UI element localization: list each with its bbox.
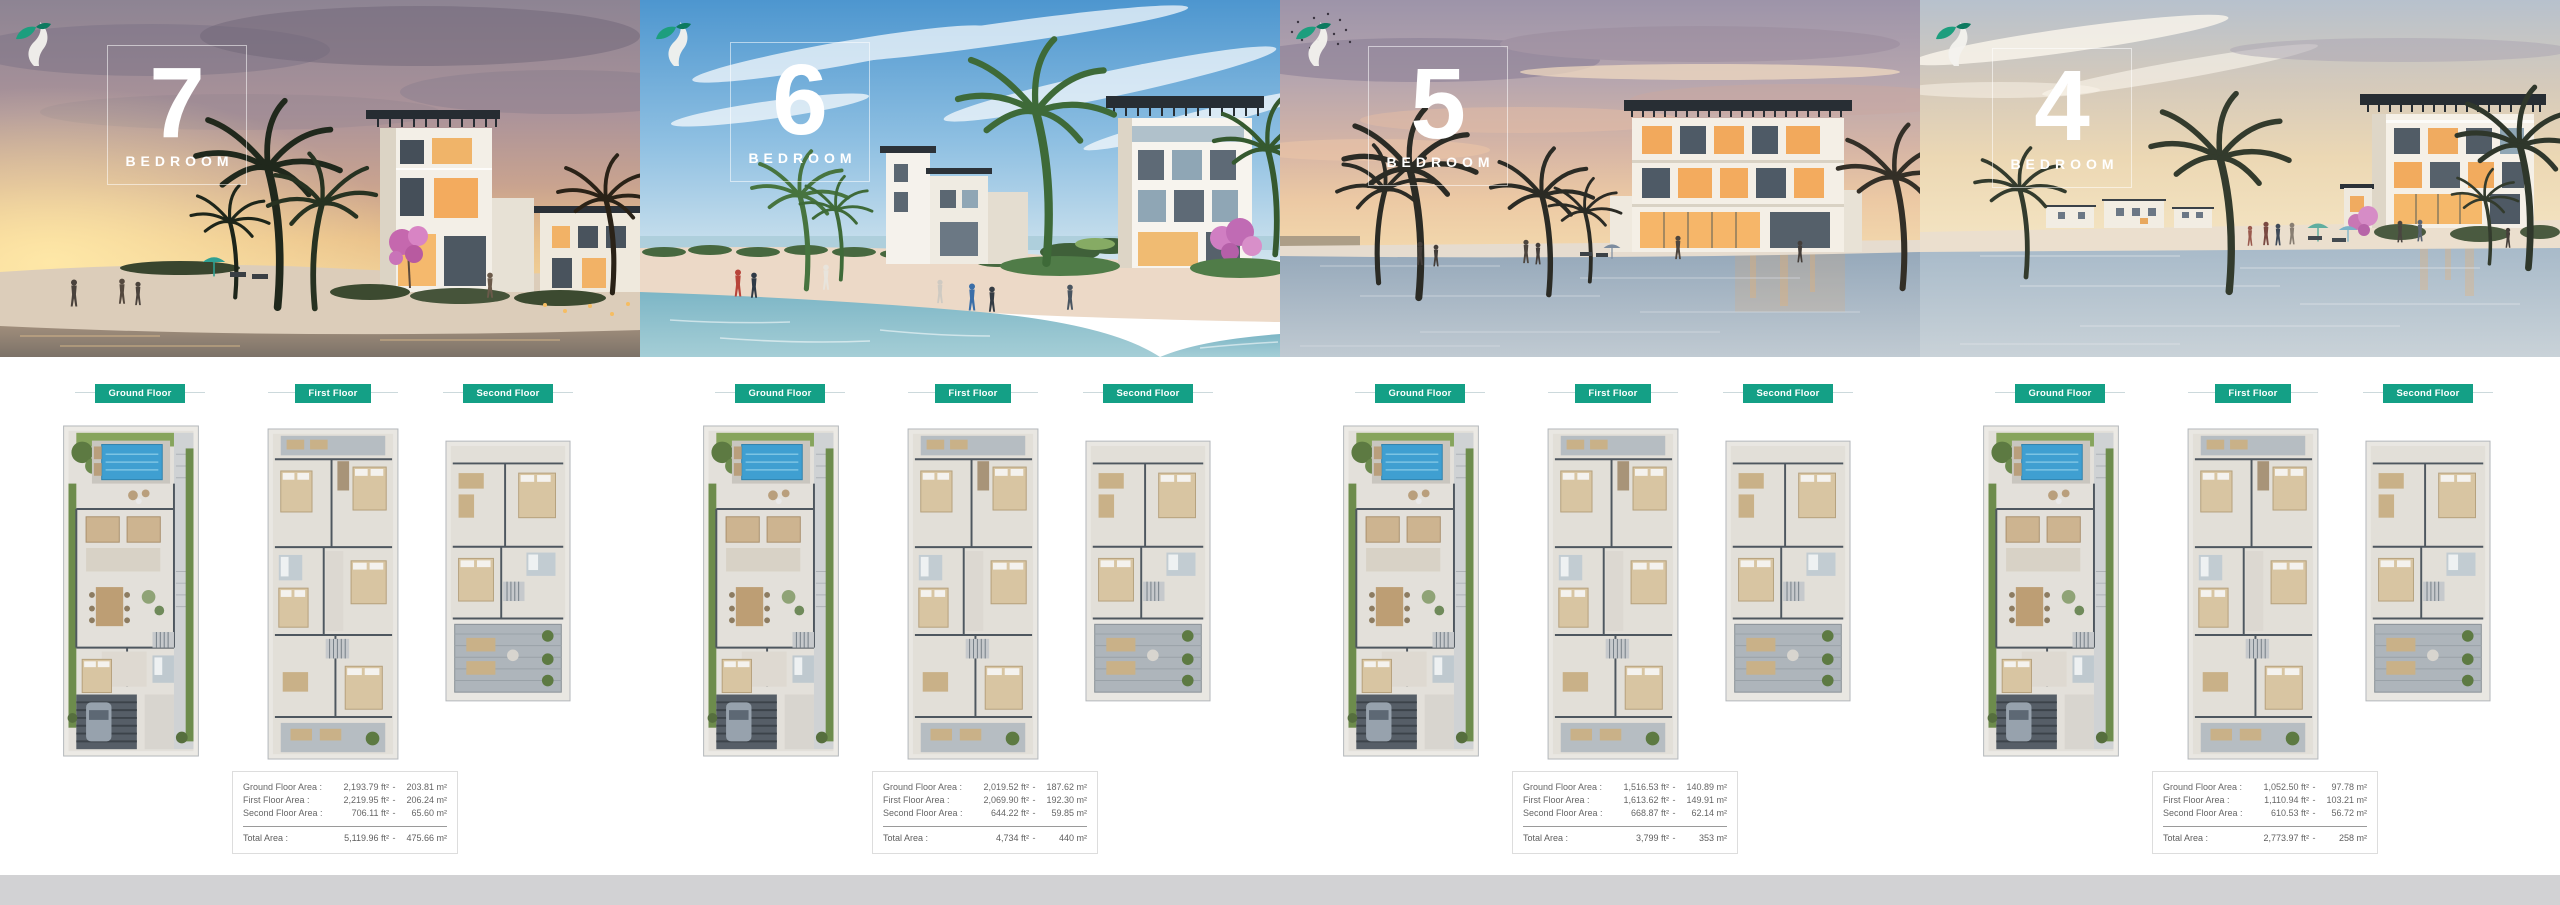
table-total-row: Total Area : 4,734 ft² - 440 m² — [883, 832, 1087, 845]
photo-5-bedroom: 5 BEDROOM — [1280, 0, 1920, 357]
unit-separator: - — [2309, 807, 2319, 820]
total-sqft: 2,773.97 ft² — [2249, 832, 2309, 845]
unit-separator: - — [1029, 832, 1039, 845]
photo-4-bedroom: 4 BEDROOM — [1920, 0, 2560, 357]
floor-header-ground: Ground Floor — [75, 384, 205, 402]
brand-logo-icon — [653, 20, 697, 68]
row-sqft: 610.53 ft² — [2249, 807, 2309, 820]
total-sqft: 5,119.96 ft² — [329, 832, 389, 845]
bedroom-number: 7 — [149, 61, 205, 146]
table-divider — [243, 826, 447, 827]
table-total-row: Total Area : 2,773.97 ft² - 258 m² — [2163, 832, 2367, 845]
unit-separator: - — [389, 794, 399, 807]
table-row: First Floor Area : 2,069.90 ft² - 192.30… — [883, 794, 1087, 807]
row-sqm: 192.30 m² — [1039, 794, 1087, 807]
first-floor-badge[interactable]: First Floor — [295, 384, 370, 403]
floor-header-first: First Floor — [268, 384, 398, 402]
row-sqm: 206.24 m² — [399, 794, 447, 807]
bedroom-count-box: 5 BEDROOM — [1368, 46, 1508, 186]
unit-separator: - — [389, 781, 399, 794]
table-row: Second Floor Area : 706.11 ft² - 65.60 m… — [243, 807, 447, 820]
row-label: Second Floor Area : — [2163, 807, 2249, 820]
second-floor-badge[interactable]: Second Floor — [1743, 384, 1832, 403]
row-sqft: 668.87 ft² — [1609, 807, 1669, 820]
ground-floor-badge[interactable]: Ground Floor — [95, 384, 184, 403]
second-floor-plan — [1725, 437, 1851, 705]
row-sqft: 1,052.50 ft² — [2249, 781, 2309, 794]
bedroom-number: 6 — [772, 58, 828, 143]
total-label: Total Area : — [883, 832, 969, 845]
table-row: Ground Floor Area : 2,193.79 ft² - 203.8… — [243, 781, 447, 794]
unit-separator: - — [1669, 832, 1679, 845]
first-floor-badge[interactable]: First Floor — [935, 384, 1010, 403]
second-floor-plan — [1085, 437, 1211, 705]
first-floor-badge[interactable]: First Floor — [2215, 384, 2290, 403]
row-sqft: 2,069.90 ft² — [969, 794, 1029, 807]
row-label: Ground Floor Area : — [1523, 781, 1609, 794]
table-row: Second Floor Area : 610.53 ft² - 56.72 m… — [2163, 807, 2367, 820]
row-label: First Floor Area : — [883, 794, 969, 807]
brand-logo-icon — [1293, 20, 1337, 68]
photo-6-bedroom: 6 BEDROOM — [640, 0, 1280, 357]
panel-6-bedroom: 6 BEDROOM Ground Floor First Floor Secon… — [640, 0, 1280, 905]
unit-separator: - — [1029, 794, 1039, 807]
panel-5-bedroom: 5 BEDROOM Ground Floor First Floor Secon… — [1280, 0, 1920, 905]
floor-header-ground: Ground Floor — [1355, 384, 1485, 402]
bedroom-label: BEDROOM — [743, 150, 856, 166]
ground-floor-plan — [702, 425, 840, 757]
ground-floor-plan — [1342, 425, 1480, 757]
row-sqft: 2,219.95 ft² — [329, 794, 389, 807]
table-total-row: Total Area : 3,799 ft² - 353 m² — [1523, 832, 1727, 845]
bedroom-count-box: 7 BEDROOM — [107, 45, 247, 185]
panel-4-bedroom: 4 BEDROOM Ground Floor First Floor Secon… — [1920, 0, 2560, 905]
first-floor-plan — [2187, 428, 2319, 760]
row-sqm: 97.78 m² — [2319, 781, 2367, 794]
row-label: First Floor Area : — [1523, 794, 1609, 807]
floor-header-first: First Floor — [2188, 384, 2318, 402]
bedroom-label: BEDROOM — [120, 153, 233, 169]
table-row: Second Floor Area : 668.87 ft² - 62.14 m… — [1523, 807, 1727, 820]
floor-header-first: First Floor — [1548, 384, 1678, 402]
area-table: Ground Floor Area : 2,019.52 ft² - 187.6… — [872, 771, 1098, 854]
total-label: Total Area : — [1523, 832, 1609, 845]
total-sqm: 440 m² — [1039, 832, 1087, 845]
total-sqm: 353 m² — [1679, 832, 1727, 845]
table-row: Ground Floor Area : 1,516.53 ft² - 140.8… — [1523, 781, 1727, 794]
table-row: Ground Floor Area : 1,052.50 ft² - 97.78… — [2163, 781, 2367, 794]
area-table: Ground Floor Area : 2,193.79 ft² - 203.8… — [232, 771, 458, 854]
floor-header-first: First Floor — [908, 384, 1038, 402]
row-sqm: 62.14 m² — [1679, 807, 1727, 820]
row-sqm: 203.81 m² — [399, 781, 447, 794]
first-floor-plan — [907, 428, 1039, 760]
unit-separator: - — [2309, 781, 2319, 794]
row-label: Second Floor Area : — [883, 807, 969, 820]
second-floor-plan — [445, 437, 571, 705]
row-sqft: 1,516.53 ft² — [1609, 781, 1669, 794]
row-sqft: 1,613.62 ft² — [1609, 794, 1669, 807]
row-label: Ground Floor Area : — [2163, 781, 2249, 794]
second-floor-badge[interactable]: Second Floor — [463, 384, 552, 403]
photo-7-bedroom: 7 BEDROOM — [0, 0, 640, 357]
unit-separator: - — [389, 832, 399, 845]
second-floor-badge[interactable]: Second Floor — [1103, 384, 1192, 403]
area-table: Ground Floor Area : 1,516.53 ft² - 140.8… — [1512, 771, 1738, 854]
ground-floor-plan — [1982, 425, 2120, 757]
row-label: Ground Floor Area : — [243, 781, 329, 794]
unit-separator: - — [2309, 832, 2319, 845]
panel-7-bedroom: 7 BEDROOM Ground Floor First Floor Secon… — [0, 0, 640, 905]
bedroom-label: BEDROOM — [1381, 154, 1494, 170]
unit-separator: - — [2309, 794, 2319, 807]
bedroom-label: BEDROOM — [2005, 156, 2118, 172]
row-label: First Floor Area : — [2163, 794, 2249, 807]
total-sqm: 475.66 m² — [399, 832, 447, 845]
floor-header-ground: Ground Floor — [715, 384, 845, 402]
row-sqm: 149.91 m² — [1679, 794, 1727, 807]
footer-bar — [0, 875, 2560, 905]
total-label: Total Area : — [2163, 832, 2249, 845]
table-row: First Floor Area : 1,110.94 ft² - 103.21… — [2163, 794, 2367, 807]
row-sqm: 56.72 m² — [2319, 807, 2367, 820]
row-label: First Floor Area : — [243, 794, 329, 807]
total-label: Total Area : — [243, 832, 329, 845]
bedroom-count-box: 6 BEDROOM — [730, 42, 870, 182]
unit-separator: - — [1029, 807, 1039, 820]
table-row: First Floor Area : 2,219.95 ft² - 206.24… — [243, 794, 447, 807]
table-row: First Floor Area : 1,613.62 ft² - 149.91… — [1523, 794, 1727, 807]
row-sqft: 1,110.94 ft² — [2249, 794, 2309, 807]
sunset-beach-villa-image — [0, 0, 640, 357]
ground-floor-badge[interactable]: Ground Floor — [735, 384, 824, 403]
floor-header-second: Second Floor — [2363, 384, 2493, 402]
row-sqm: 187.62 m² — [1039, 781, 1087, 794]
table-divider — [883, 826, 1087, 827]
row-sqft: 2,019.52 ft² — [969, 781, 1029, 794]
floor-header-second: Second Floor — [1723, 384, 1853, 402]
table-row: Second Floor Area : 644.22 ft² - 59.85 m… — [883, 807, 1087, 820]
bedroom-number: 5 — [1410, 62, 1466, 147]
row-sqft: 706.11 ft² — [329, 807, 389, 820]
unit-separator: - — [389, 807, 399, 820]
total-sqft: 4,734 ft² — [969, 832, 1029, 845]
row-sqm: 59.85 m² — [1039, 807, 1087, 820]
row-sqm: 103.21 m² — [2319, 794, 2367, 807]
unit-separator: - — [1669, 794, 1679, 807]
row-label: Ground Floor Area : — [883, 781, 969, 794]
row-label: Second Floor Area : — [243, 807, 329, 820]
first-floor-plan — [1547, 428, 1679, 760]
brand-logo-icon — [1933, 20, 1977, 68]
brochure-sheet: 7 BEDROOM Ground Floor First Floor Secon… — [0, 0, 2560, 905]
table-total-row: Total Area : 5,119.96 ft² - 475.66 m² — [243, 832, 447, 845]
table-row: Ground Floor Area : 2,019.52 ft² - 187.6… — [883, 781, 1087, 794]
floor-header-second: Second Floor — [1083, 384, 1213, 402]
unit-separator: - — [1669, 781, 1679, 794]
second-floor-badge[interactable]: Second Floor — [2383, 384, 2472, 403]
row-sqft: 2,193.79 ft² — [329, 781, 389, 794]
ground-floor-badge[interactable]: Ground Floor — [2015, 384, 2104, 403]
row-sqm: 65.60 m² — [399, 807, 447, 820]
bedroom-count-box: 4 BEDROOM — [1992, 48, 2132, 188]
second-floor-plan — [2365, 437, 2491, 705]
total-sqm: 258 m² — [2319, 832, 2367, 845]
row-label: Second Floor Area : — [1523, 807, 1609, 820]
unit-separator: - — [1669, 807, 1679, 820]
area-table: Ground Floor Area : 1,052.50 ft² - 97.78… — [2152, 771, 2378, 854]
floor-header-ground: Ground Floor — [1995, 384, 2125, 402]
table-divider — [2163, 826, 2367, 827]
floor-header-second: Second Floor — [443, 384, 573, 402]
ground-floor-badge[interactable]: Ground Floor — [1375, 384, 1464, 403]
brand-logo-icon — [13, 20, 57, 68]
bedroom-number: 4 — [2034, 64, 2090, 149]
table-divider — [1523, 826, 1727, 827]
total-sqft: 3,799 ft² — [1609, 832, 1669, 845]
ground-floor-plan — [62, 425, 200, 757]
first-floor-plan — [267, 428, 399, 760]
row-sqft: 644.22 ft² — [969, 807, 1029, 820]
first-floor-badge[interactable]: First Floor — [1575, 384, 1650, 403]
row-sqm: 140.89 m² — [1679, 781, 1727, 794]
unit-separator: - — [1029, 781, 1039, 794]
